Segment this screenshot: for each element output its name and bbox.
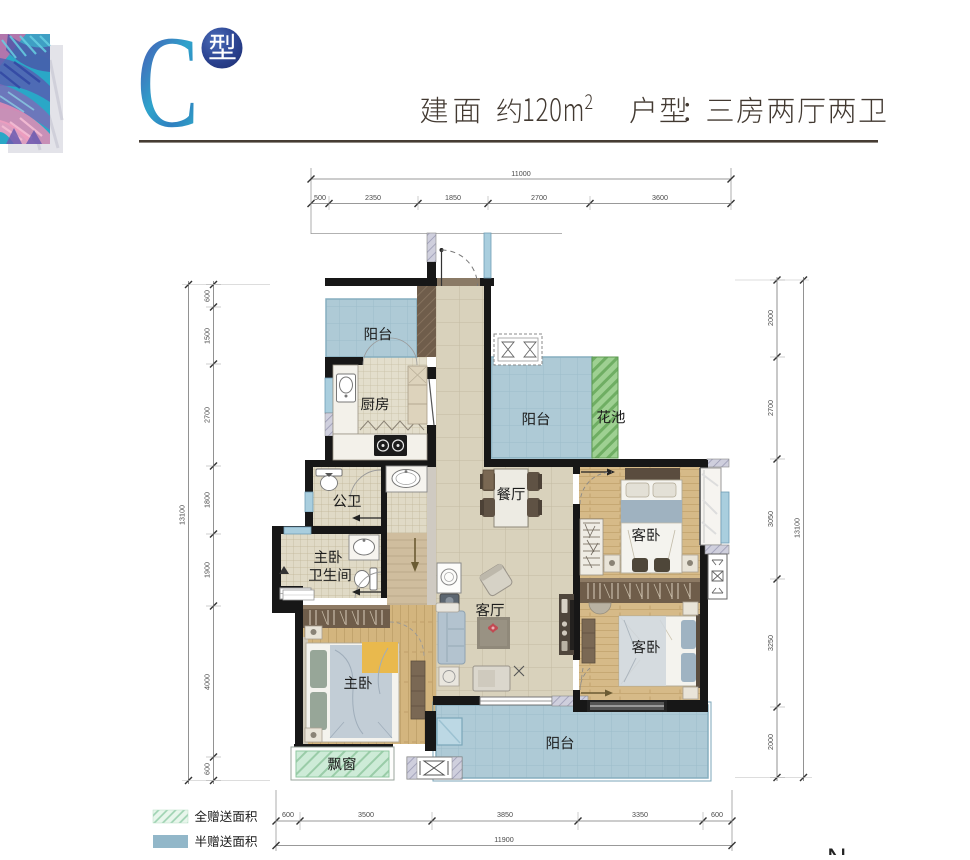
svg-text:3050: 3050 [766, 511, 775, 527]
svg-text:2000: 2000 [766, 310, 775, 326]
svg-text:1500: 1500 [203, 328, 212, 344]
svg-text:C: C [137, 8, 199, 155]
svg-text:600: 600 [711, 810, 723, 819]
svg-text:2700: 2700 [203, 407, 212, 423]
svg-text:600: 600 [203, 763, 212, 775]
svg-text:600: 600 [282, 810, 294, 819]
svg-text:N: N [827, 843, 847, 855]
svg-text:3250: 3250 [766, 635, 775, 651]
svg-text:2000: 2000 [766, 734, 775, 750]
svg-text:4000: 4000 [203, 674, 212, 690]
svg-text:3850: 3850 [497, 810, 513, 819]
svg-text:3500: 3500 [358, 810, 374, 819]
svg-text:13100: 13100 [178, 505, 187, 525]
svg-text:1800: 1800 [203, 492, 212, 508]
svg-text:1900: 1900 [203, 562, 212, 578]
svg-text:11000: 11000 [511, 169, 530, 178]
svg-text:500: 500 [314, 193, 326, 202]
svg-text:2700: 2700 [766, 400, 775, 416]
svg-text:1850: 1850 [445, 193, 461, 202]
svg-text:600: 600 [203, 290, 212, 302]
svg-text:11900: 11900 [494, 835, 513, 844]
svg-text:2700: 2700 [531, 193, 547, 202]
svg-text:13100: 13100 [793, 518, 802, 538]
svg-text:3600: 3600 [652, 193, 668, 202]
svg-text:3350: 3350 [632, 810, 648, 819]
svg-text:2350: 2350 [365, 193, 381, 202]
